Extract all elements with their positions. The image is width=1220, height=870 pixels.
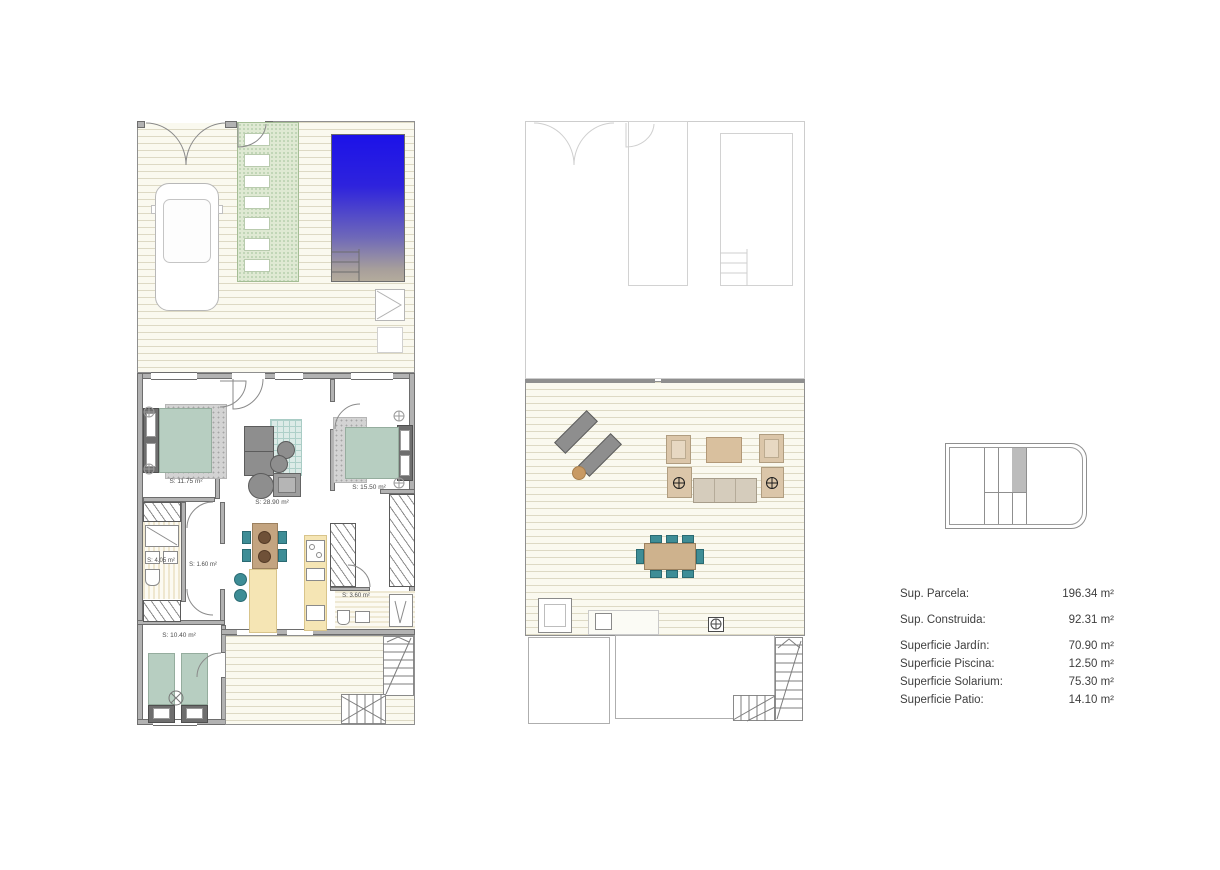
area-value: 196.34 m²: [1062, 587, 1114, 602]
area-value: 14.10 m²: [1069, 693, 1114, 708]
kitchen-sink: [306, 568, 325, 581]
dining-chair: [278, 549, 287, 562]
wardrobe: [143, 600, 181, 622]
wall: [181, 502, 186, 602]
toilet: [337, 610, 350, 625]
dining-table: [644, 543, 696, 570]
door-opening: [232, 373, 265, 379]
wardrobe: [143, 502, 181, 522]
burner: [316, 552, 322, 558]
dining-chair: [682, 570, 694, 578]
staircase: [775, 637, 803, 721]
dining-chair: [278, 531, 287, 544]
garden-path: [237, 122, 299, 282]
solarium-plan: [525, 121, 805, 725]
wall-stub: [137, 121, 145, 128]
area-label: Sup. Parcela:: [900, 587, 969, 602]
room-label: S: 11.75 m²: [151, 478, 221, 485]
wardrobe: [389, 494, 415, 587]
table-row: Sup. Parcela: 196.34 m²: [900, 587, 1114, 602]
pillow: [146, 443, 156, 467]
car-mirror: [151, 205, 156, 214]
table-row: Superficie Patio: 14.10 m²: [900, 693, 1114, 708]
stepping-stone: [244, 133, 270, 146]
double-bed: [159, 408, 212, 473]
car-mirror: [218, 205, 223, 214]
unit-divider: [1026, 448, 1027, 524]
area-value: 12.50 m²: [1069, 657, 1114, 672]
dining-chair: [666, 570, 678, 578]
wall: [220, 502, 225, 544]
room-label: S: 4.05 m²: [138, 558, 184, 564]
pouf: [248, 473, 274, 499]
pillow: [400, 455, 410, 476]
wardrobe: [330, 523, 356, 587]
staircase: [383, 636, 414, 696]
area-value: 70.90 m²: [1069, 639, 1114, 654]
stepping-stone: [244, 259, 270, 272]
room-label: S: 3.60 m²: [333, 593, 379, 599]
unit-divider: [984, 448, 985, 524]
dining-chair: [650, 535, 662, 543]
bbq-grill: [708, 617, 724, 632]
parapet-wall: [661, 379, 805, 383]
room-label: S: 1.60 m²: [183, 562, 223, 568]
room-label: S: 15.50 m²: [337, 484, 401, 491]
unit-divider: [984, 492, 1027, 493]
lounge-chair: [761, 467, 784, 498]
highlighted-unit: [1012, 448, 1026, 492]
staircase: [341, 694, 386, 724]
pouf: [270, 455, 288, 473]
cabinet-inset: [544, 604, 566, 627]
area-label: Superficie Piscina:: [900, 657, 995, 672]
stepping-stone: [244, 217, 270, 230]
coffee-table: [706, 437, 742, 463]
staircase: [733, 695, 775, 721]
stove: [306, 540, 325, 562]
pool-pad: [377, 327, 403, 353]
dining-chair: [636, 549, 644, 564]
parapet-wall: [525, 379, 655, 383]
area-value: 75.30 m²: [1069, 675, 1114, 690]
table-row: Superficie Jardín: 70.90 m²: [900, 639, 1114, 654]
gate-opening: [145, 120, 227, 123]
bathtub: [389, 594, 413, 627]
window: [275, 372, 303, 380]
single-bed: [181, 653, 208, 705]
dining-chair: [650, 570, 662, 578]
table-row: Superficie Piscina: 12.50 m²: [900, 657, 1114, 672]
kitchen-island: [249, 569, 277, 633]
pillow: [186, 708, 203, 719]
pillow: [400, 430, 410, 451]
area-label: Superficie Patio:: [900, 693, 984, 708]
plate: [258, 550, 271, 563]
pillow: [146, 413, 156, 437]
window: [351, 372, 393, 380]
toilet: [145, 569, 160, 586]
site-key-plan: [945, 443, 1087, 529]
stool: [234, 589, 247, 602]
area-label: Superficie Jardín:: [900, 639, 990, 654]
wall: [330, 379, 335, 402]
table-row: Sup. Construida: 92.31 m²: [900, 613, 1114, 628]
areas-summary-table: Sup. Parcela: 196.34 m² Sup. Construida:…: [900, 587, 1114, 708]
area-label: Sup. Construida:: [900, 613, 986, 628]
plate: [258, 531, 271, 544]
unit-divider: [998, 448, 999, 524]
outdoor-shower: [375, 289, 405, 321]
sofa: [244, 426, 274, 476]
wall: [220, 589, 225, 622]
room-label: S: 28.90 m²: [237, 499, 307, 506]
sink: [355, 611, 370, 623]
area-value: 92.31 m²: [1069, 613, 1114, 628]
patio-room-outline: [528, 637, 610, 724]
stepping-stone: [244, 196, 270, 209]
ghost-pool: [720, 133, 793, 286]
dining-chair: [666, 535, 678, 543]
wall-stub: [225, 121, 237, 128]
dining-chair: [242, 531, 251, 544]
armchair-cushion: [671, 440, 686, 459]
ghost-path: [628, 121, 688, 286]
window: [151, 372, 197, 380]
lounge-chair: [667, 467, 692, 498]
ground-floor-plan: S: 11.75 m² S: 28.90 m² S: 1: [137, 121, 415, 725]
dining-chair: [682, 535, 694, 543]
table-row: Superficie Solarium: 75.30 m²: [900, 675, 1114, 690]
swimming-pool: [331, 134, 405, 282]
stepping-stone: [244, 238, 270, 251]
double-bed: [345, 427, 399, 479]
dining-chair: [242, 549, 251, 562]
bar-sink: [595, 613, 612, 630]
car-roof: [163, 199, 211, 263]
stool: [234, 573, 247, 586]
stepping-stone: [244, 175, 270, 188]
area-label: Superficie Solarium:: [900, 675, 1003, 690]
shower-tray: [145, 525, 179, 547]
pillow: [153, 708, 170, 719]
cabinet: [306, 605, 325, 621]
single-bed: [148, 653, 175, 705]
outdoor-sofa: [693, 478, 757, 503]
lounger-side-table: [572, 466, 586, 480]
room-label: S: 10.40 m²: [147, 632, 211, 639]
stepping-stone: [244, 154, 270, 167]
floor-plan-sheet: S: 11.75 m² S: 28.90 m² S: 1: [0, 0, 1220, 870]
armchair-cushion: [764, 439, 779, 458]
dining-chair: [696, 549, 704, 564]
side-table-top: [278, 477, 296, 493]
burner: [309, 544, 315, 550]
